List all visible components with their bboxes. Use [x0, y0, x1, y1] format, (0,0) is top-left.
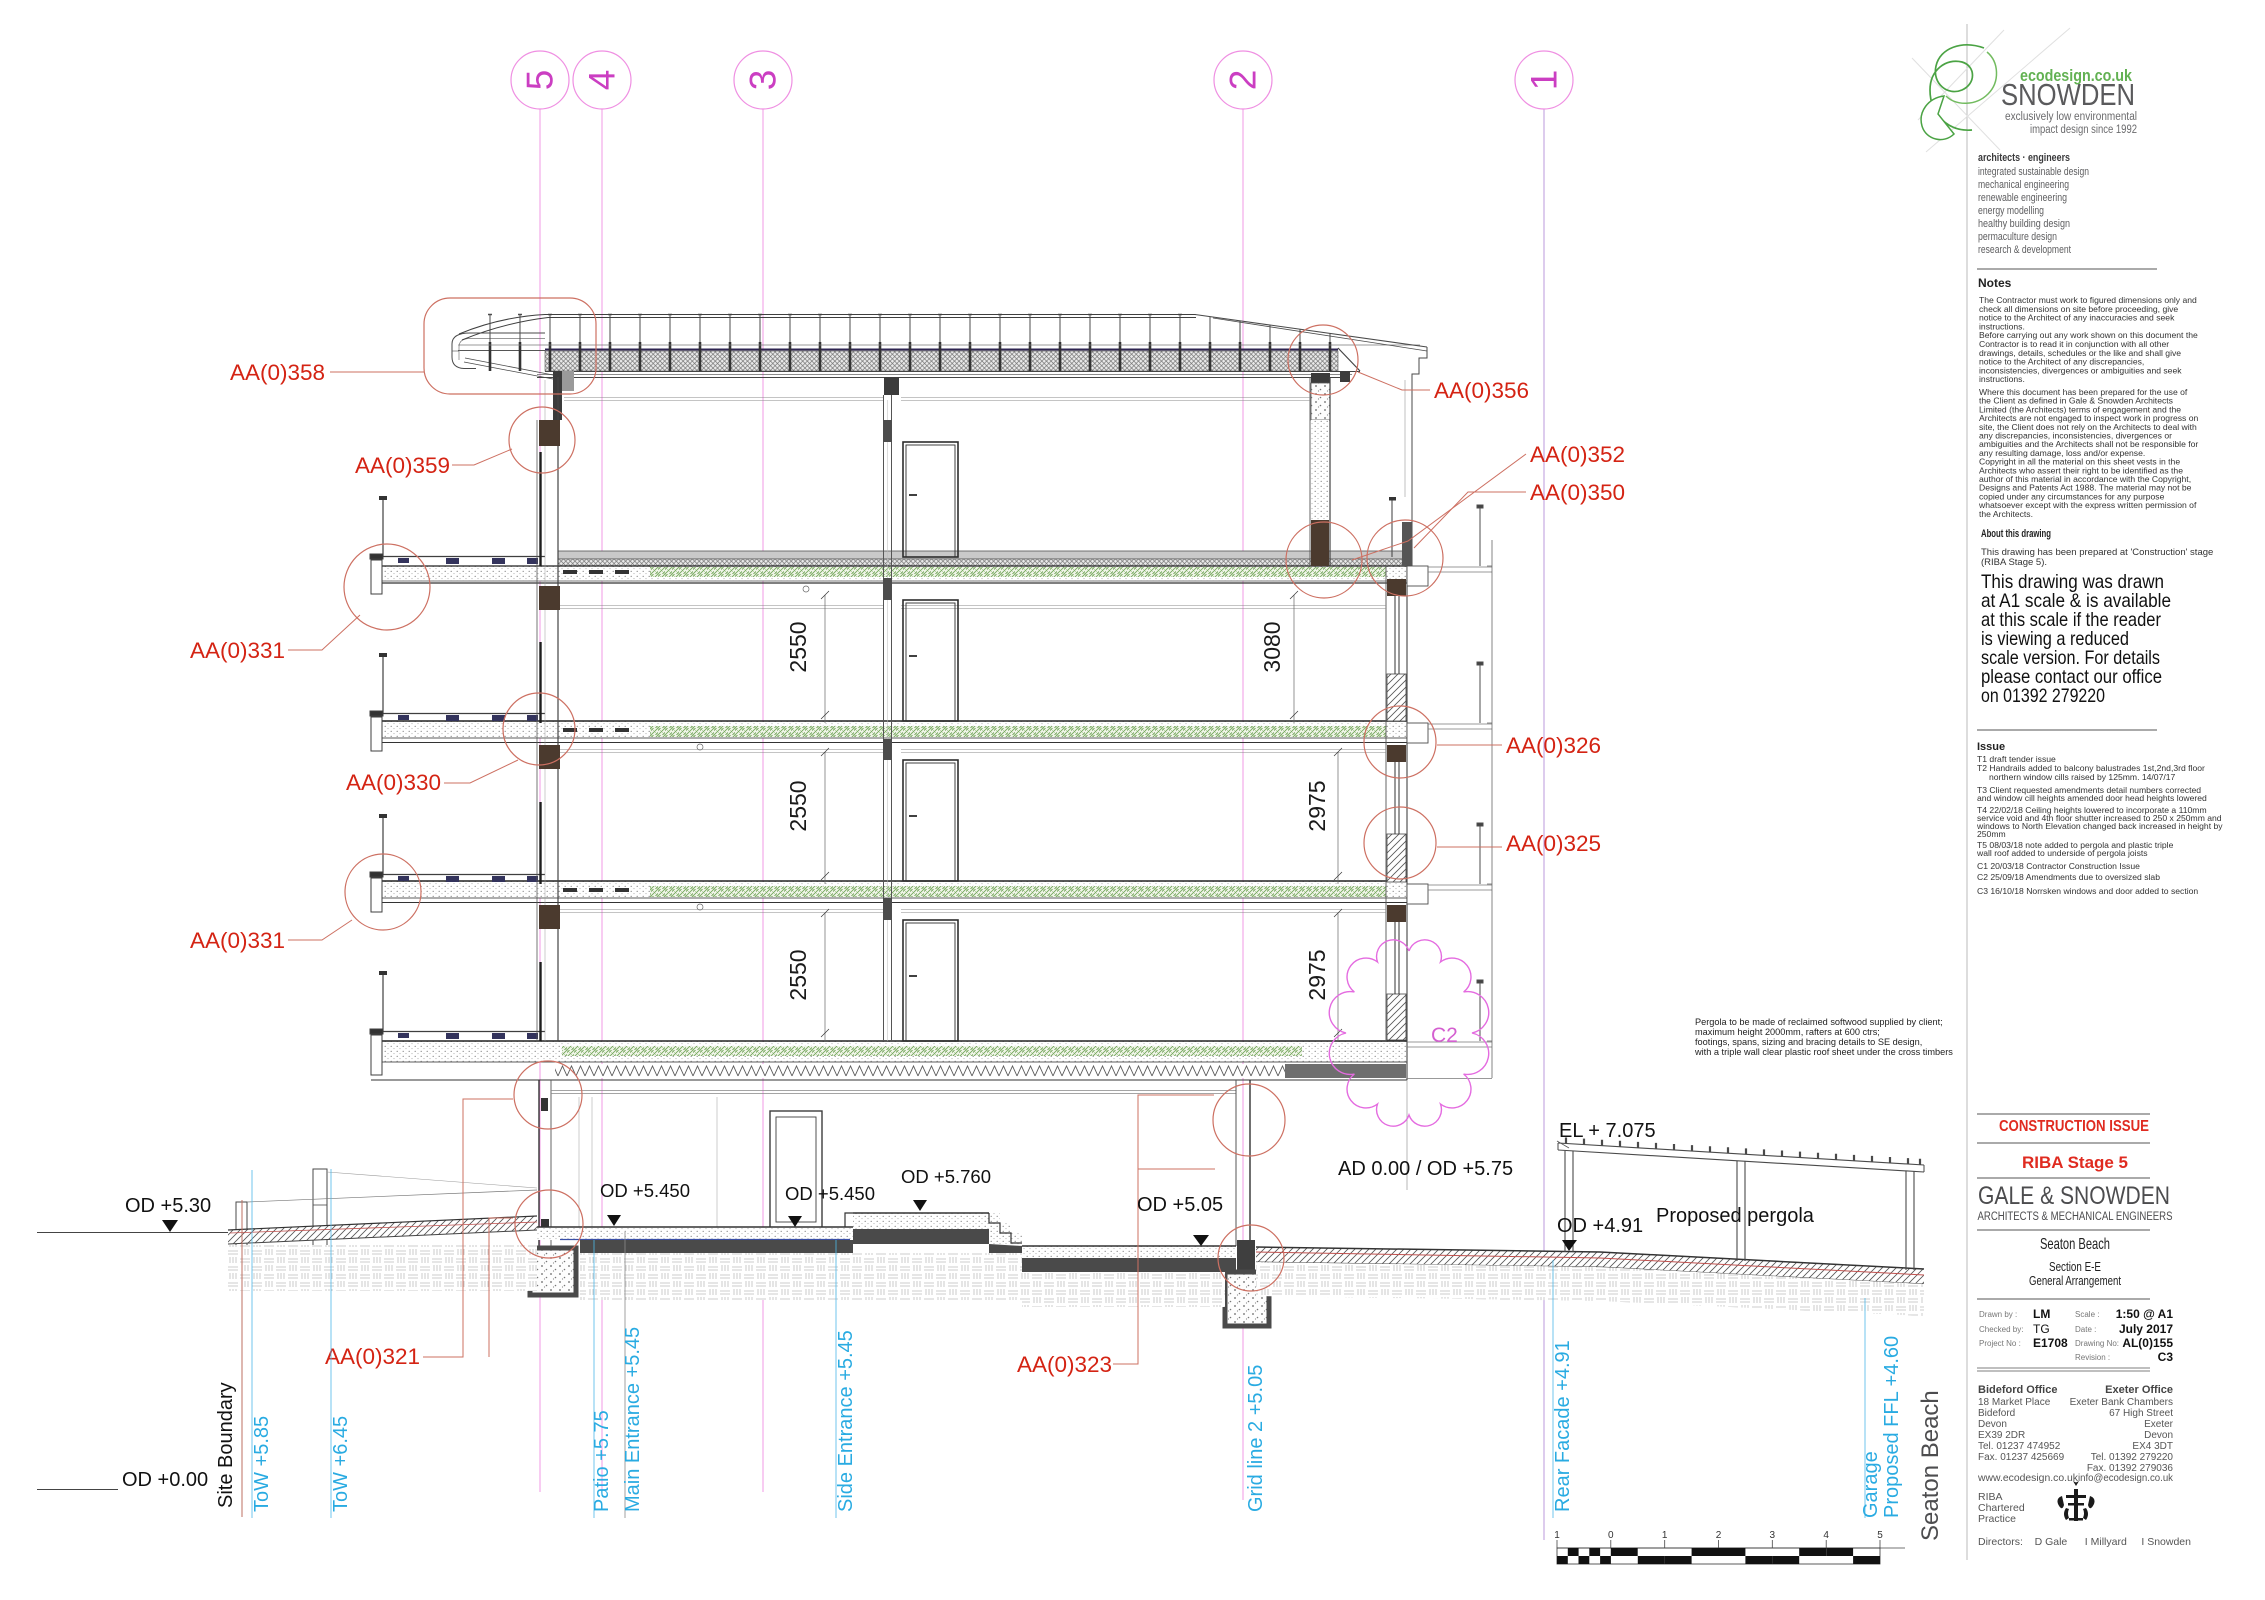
svg-text:Bideford: Bideford — [1978, 1408, 2015, 1419]
svg-text:LM: LM — [2033, 1307, 2050, 1321]
svg-text:AA(0)325: AA(0)325 — [1506, 831, 1601, 856]
svg-text:ToW +6.45: ToW +6.45 — [330, 1416, 352, 1512]
svg-text:with a triple wall clear plast: with a triple wall clear plastic roof sh… — [1694, 1047, 1953, 1057]
svg-text:www.ecodesign.co.uk: www.ecodesign.co.uk — [1977, 1473, 2079, 1484]
svg-text:AA(0)326: AA(0)326 — [1506, 733, 1601, 758]
svg-text:Notes: Notes — [1978, 276, 2012, 290]
svg-text:2: 2 — [1716, 1530, 1722, 1541]
svg-text:18 Market Place: 18 Market Place — [1978, 1397, 2051, 1408]
svg-text:2550: 2550 — [785, 621, 811, 672]
svg-text:EL + 7.075: EL + 7.075 — [1559, 1120, 1656, 1142]
svg-text:OD +0.00: OD +0.00 — [122, 1469, 208, 1491]
svg-text:info@ecodesign.co.uk: info@ecodesign.co.uk — [2078, 1473, 2174, 1484]
svg-text:E1708: E1708 — [2033, 1336, 2068, 1350]
svg-text:Checked by:: Checked by: — [1979, 1325, 2023, 1334]
svg-text:architects · engineers: architects · engineers — [1978, 152, 2070, 164]
svg-text:maximum height 2000mm, rafters: maximum height 2000mm, rafters at 600 ct… — [1695, 1027, 1880, 1037]
svg-text:OD +4.91: OD +4.91 — [1557, 1215, 1643, 1237]
svg-text:1: 1 — [1554, 1530, 1560, 1541]
svg-text:C2: C2 — [1431, 1024, 1458, 1047]
svg-text:Practice: Practice — [1978, 1513, 2016, 1525]
svg-text:AA(0)359: AA(0)359 — [355, 453, 450, 478]
svg-text:5: 5 — [520, 70, 561, 91]
svg-text:About this drawing: About this drawing — [1981, 528, 2051, 540]
svg-text:1: 1 — [1524, 70, 1565, 91]
svg-text:TG: TG — [2033, 1322, 2050, 1336]
svg-text:Exeter: Exeter — [2144, 1419, 2174, 1430]
svg-text:OD +5.760: OD +5.760 — [901, 1166, 991, 1187]
svg-text:Drawn by :: Drawn by : — [1979, 1310, 2017, 1319]
svg-text:AA(0)350: AA(0)350 — [1530, 480, 1625, 505]
svg-text:AA(0)323: AA(0)323 — [1017, 1352, 1112, 1377]
svg-text:ToW +5.85: ToW +5.85 — [251, 1416, 273, 1512]
svg-text:RIBA Stage 5: RIBA Stage 5 — [2022, 1153, 2128, 1172]
svg-text:(RIBA Stage 5).: (RIBA Stage 5). — [1981, 557, 2047, 568]
svg-text:Seaton Beach: Seaton Beach — [1917, 1390, 1944, 1541]
svg-text:AA(0)331: AA(0)331 — [190, 638, 285, 663]
svg-text:Garage: Garage — [1860, 1451, 1882, 1518]
svg-text:Rear Facade +4.91: Rear Facade +4.91 — [1552, 1340, 1574, 1512]
svg-text:4: 4 — [582, 70, 623, 91]
svg-text:2550: 2550 — [785, 780, 811, 831]
svg-text:Issue: Issue — [1977, 741, 2005, 753]
svg-text:northern window cills raised b: northern window cills raised by 125mm. 1… — [1989, 772, 2176, 782]
svg-text:Section E-E: Section E-E — [2049, 1259, 2101, 1274]
svg-text:Directors: D Gale I: Directors: D Gale I Millyard I Snowden — [1978, 1536, 2191, 1548]
svg-text:Pergola to be made of reclaime: Pergola to be made of reclaimed softwood… — [1695, 1017, 1943, 1027]
svg-text:1:50 @ A1: 1:50 @ A1 — [2116, 1307, 2174, 1321]
svg-text:C3: C3 — [2158, 1350, 2174, 1364]
svg-text:AD 0.00 / OD +5.75: AD 0.00 / OD +5.75 — [1338, 1158, 1513, 1180]
svg-text:0: 0 — [1608, 1530, 1614, 1541]
svg-text:research & development: research & development — [1978, 244, 2071, 256]
svg-text:Site Boundary: Site Boundary — [215, 1382, 237, 1508]
svg-text:wall roof added to underside o: wall roof added to underside of pergola … — [1976, 848, 2148, 858]
svg-text:OD +5.450: OD +5.450 — [600, 1180, 690, 1201]
svg-text:Project No :: Project No : — [1979, 1339, 2021, 1348]
svg-text:Tel. 01237 474952: Tel. 01237 474952 — [1978, 1441, 2061, 1452]
svg-text:AA(0)330: AA(0)330 — [346, 770, 441, 795]
svg-text:C3 16/10/18 Norrsken windows: C3 16/10/18 Norrsken windows and door ad… — [1977, 886, 2198, 896]
svg-text:2975: 2975 — [1304, 949, 1330, 1000]
svg-text:impact design since 1992: impact design since 1992 — [2030, 124, 2137, 136]
svg-text:AA(0)331: AA(0)331 — [190, 928, 285, 953]
svg-text:OD +5.05: OD +5.05 — [1137, 1194, 1223, 1216]
svg-text:EX4 3DT: EX4 3DT — [2132, 1441, 2173, 1452]
svg-text:Proposed pergola: Proposed pergola — [1656, 1205, 1815, 1227]
svg-text:2975: 2975 — [1304, 780, 1330, 831]
svg-text:Exeter Bank Chambers: Exeter Bank Chambers — [2070, 1397, 2173, 1408]
svg-text:Date :: Date : — [2075, 1325, 2096, 1334]
svg-text:footings, spans, sizing and br: footings, spans, sizing and bracing deta… — [1695, 1037, 1922, 1047]
svg-text:Fax. 01237 425669: Fax. 01237 425669 — [1978, 1452, 2065, 1463]
svg-text:Exeter Office: Exeter Office — [2105, 1384, 2173, 1396]
svg-text:Seaton Beach: Seaton Beach — [2040, 1236, 2110, 1253]
svg-text:energy modelling: energy modelling — [1978, 205, 2044, 217]
svg-text:2550: 2550 — [785, 949, 811, 1000]
svg-text:General Arrangement: General Arrangement — [2029, 1273, 2121, 1288]
svg-text:on 01392 279220: on 01392 279220 — [1981, 685, 2105, 707]
svg-text:3: 3 — [743, 70, 784, 91]
svg-text:Scale :: Scale : — [2075, 1310, 2099, 1319]
svg-text:67 High Street: 67 High Street — [2109, 1408, 2173, 1419]
svg-text:ARCHITECTS & MECHANICAL ENGINE: ARCHITECTS & MECHANICAL ENGINEERS — [1978, 1211, 2173, 1223]
svg-text:Side Entrance +5.45: Side Entrance +5.45 — [835, 1330, 857, 1512]
svg-text:SNOWDEN: SNOWDEN — [2001, 77, 2135, 112]
svg-text:OD +5.30: OD +5.30 — [125, 1195, 211, 1217]
svg-text:C2 25/09/18 Amendments due to: C2 25/09/18 Amendments due to oversized … — [1977, 872, 2160, 882]
svg-text:and window cill heights amende: and window cill heights amended door hea… — [1977, 793, 2207, 803]
svg-text:renewable engineering: renewable engineering — [1978, 192, 2067, 204]
svg-text:Tel. 01392 279220: Tel. 01392 279220 — [2091, 1452, 2174, 1463]
svg-text:integrated sustainable design: integrated sustainable design — [1978, 166, 2089, 178]
svg-text:July 2017: July 2017 — [2119, 1322, 2173, 1336]
svg-text:Proposed FFL +4.60: Proposed FFL +4.60 — [1881, 1336, 1903, 1518]
svg-text:Devon: Devon — [1978, 1419, 2007, 1430]
svg-text:Patio +5.75: Patio +5.75 — [591, 1410, 613, 1512]
svg-text:permaculture design: permaculture design — [1978, 231, 2057, 243]
svg-text:healthy building design: healthy building design — [1978, 218, 2070, 230]
svg-text:AA(0)321: AA(0)321 — [325, 1344, 420, 1369]
svg-text:CONSTRUCTION ISSUE: CONSTRUCTION ISSUE — [1999, 1118, 2149, 1135]
svg-text:exclusively low environmental: exclusively low environmental — [2005, 111, 2137, 123]
svg-text:AA(0)358: AA(0)358 — [230, 360, 325, 385]
svg-text:mechanical engineering: mechanical engineering — [1978, 179, 2069, 191]
svg-text:AA(0)356: AA(0)356 — [1434, 378, 1529, 403]
svg-text:3080: 3080 — [1259, 621, 1285, 672]
svg-text:5: 5 — [1877, 1530, 1883, 1541]
svg-text:GALE & SNOWDEN: GALE & SNOWDEN — [1978, 1182, 2170, 1210]
svg-text:AL(0)155: AL(0)155 — [2122, 1336, 2173, 1350]
svg-text:3: 3 — [1770, 1530, 1776, 1541]
svg-text:instructions.: instructions. — [1979, 374, 2025, 384]
svg-text:windows to North Elevation cha: windows to North Elevation changed back … — [1976, 821, 2223, 831]
svg-text:AA(0)352: AA(0)352 — [1530, 442, 1625, 467]
svg-text:1: 1 — [1662, 1530, 1668, 1541]
svg-text:C1 20/03/18 Contractor Constr: C1 20/03/18 Contractor Construction Issu… — [1977, 861, 2140, 871]
svg-text:Devon: Devon — [2144, 1430, 2173, 1441]
svg-text:Main Entrance +5.45: Main Entrance +5.45 — [622, 1327, 644, 1512]
svg-text:Drawing No:: Drawing No: — [2075, 1339, 2119, 1348]
svg-text:250mm: 250mm — [1977, 829, 2006, 839]
svg-text:2: 2 — [1223, 70, 1264, 91]
svg-text:Revision :: Revision : — [2075, 1353, 2110, 1362]
svg-text:the Architects.: the Architects. — [1979, 509, 2033, 519]
svg-text:EX39 2DR: EX39 2DR — [1978, 1430, 2025, 1441]
svg-text:Grid line 2 +5.05: Grid line 2 +5.05 — [1245, 1365, 1267, 1512]
svg-text:Bideford Office: Bideford Office — [1978, 1384, 2057, 1396]
svg-text:OD +5.450: OD +5.450 — [785, 1183, 875, 1204]
svg-text:4: 4 — [1823, 1530, 1829, 1541]
